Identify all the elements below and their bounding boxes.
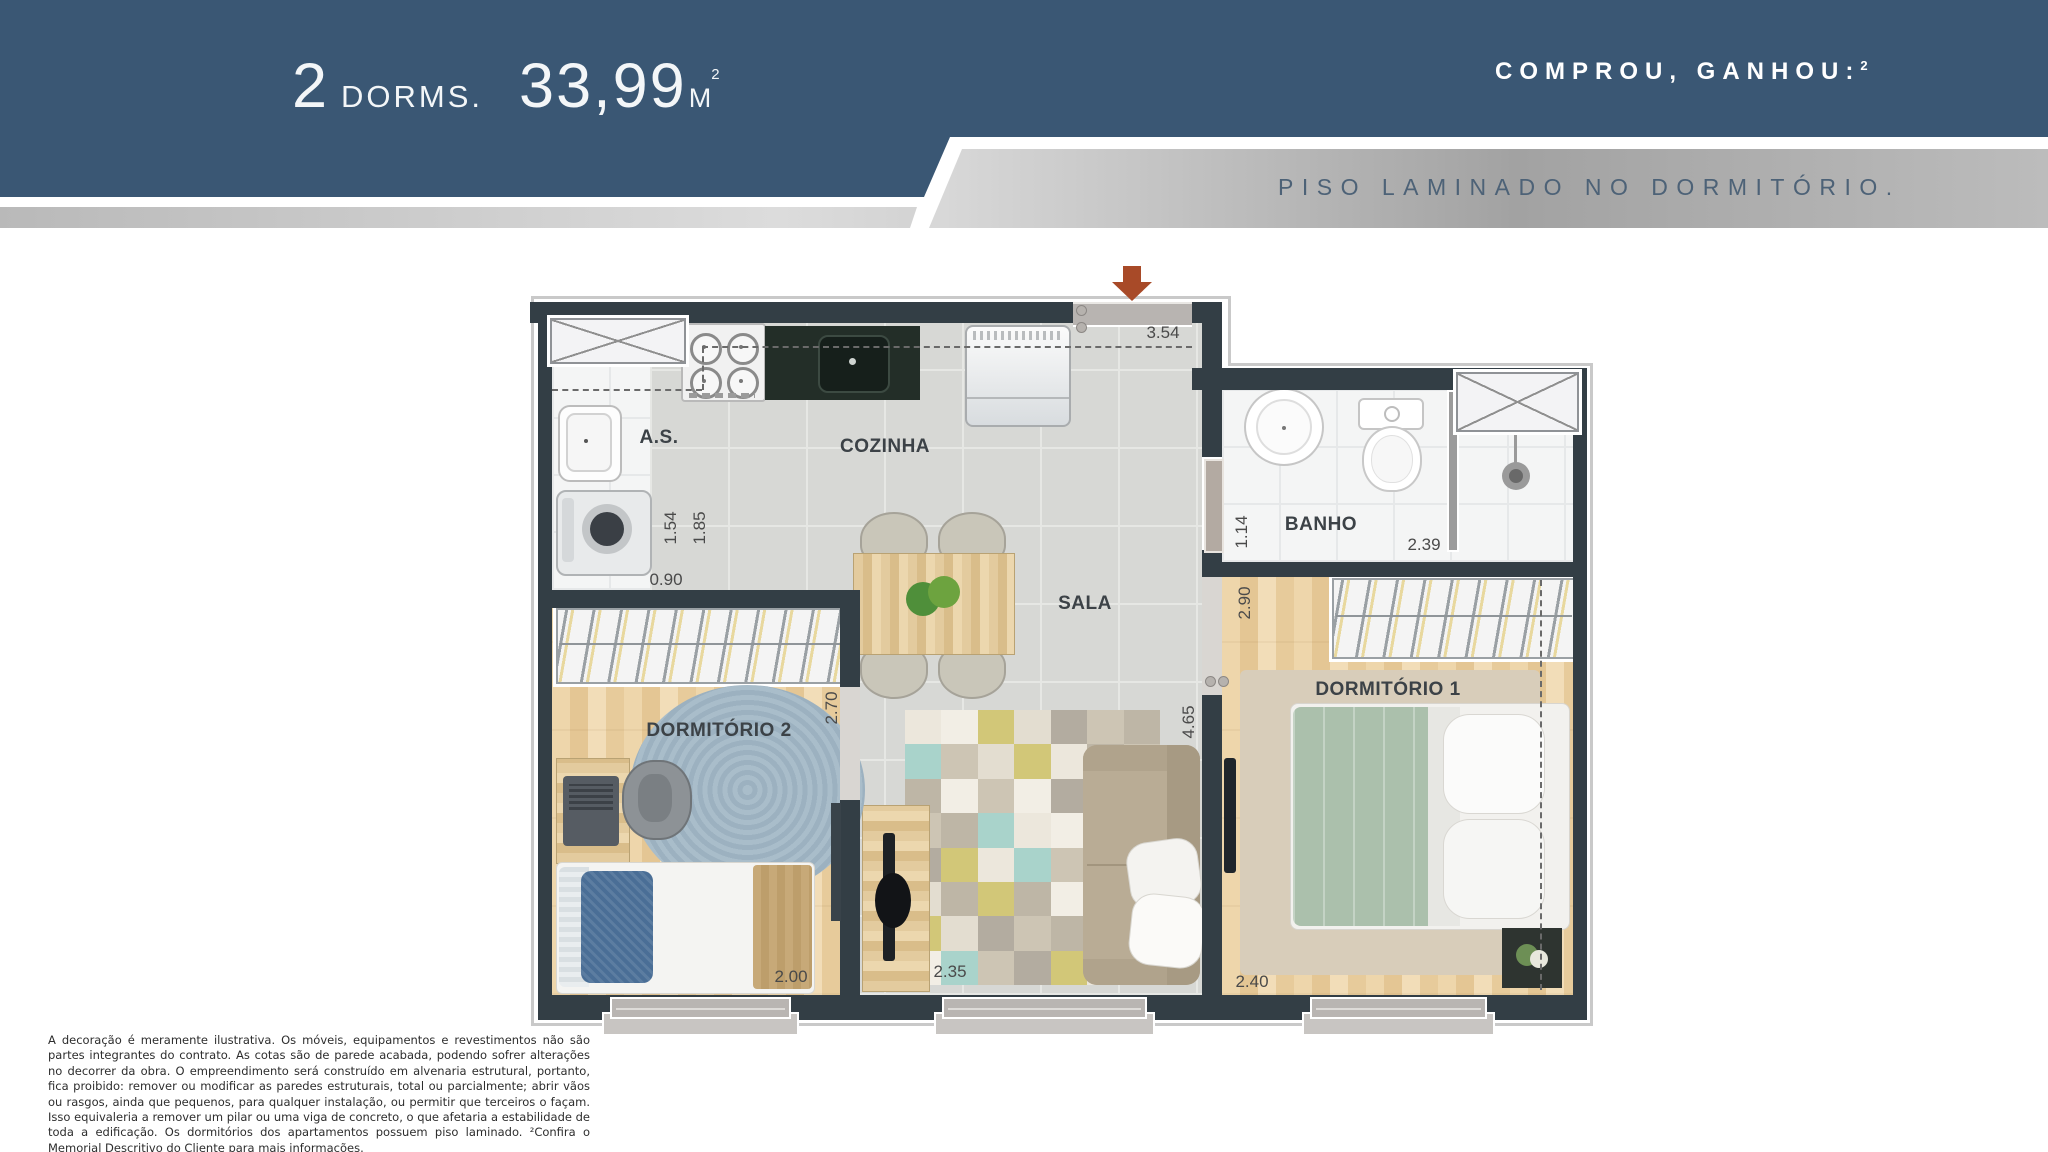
shower-head [1502, 462, 1530, 490]
dim-dorm1-width: 2.40 [1235, 972, 1268, 992]
laptop [563, 776, 619, 846]
bed-pillow [1443, 714, 1545, 814]
room-label-sala: SALA [1058, 593, 1112, 615]
units-count: 2 [292, 50, 329, 122]
door-hinge [1076, 305, 1087, 316]
flyer-page: 2 DORMS. 33,99 M2 COMPROU, GANHOU:2 PISO… [0, 0, 2048, 1152]
laundry-tank [558, 405, 622, 482]
cota-line [702, 347, 704, 390]
kitchen-counter [765, 326, 920, 400]
units-label: DORMS. [341, 79, 483, 115]
service-area-window-box [550, 318, 686, 364]
bathroom-window-box [1456, 372, 1579, 432]
bedroom1-window [1310, 997, 1487, 1019]
plant-side-table [1502, 928, 1562, 988]
plan-frame-line [1228, 296, 1231, 366]
toilet-bowl [1362, 426, 1422, 492]
dim-dorm1-depth: 2.90 [1235, 586, 1255, 619]
room-label-dormitorio1: DORMITÓRIO 1 [1315, 679, 1460, 701]
apartment-title: 2 DORMS. 33,99 M2 [292, 50, 720, 122]
wall [1202, 550, 1222, 577]
door-hinge [1218, 676, 1229, 687]
wall [840, 590, 860, 687]
wall [1573, 390, 1587, 1020]
legal-disclaimer: A decoração é meramente ilustrativa. Os … [48, 1033, 590, 1152]
dim-banho-length: 2.39 [1407, 535, 1440, 555]
washing-machine [556, 490, 652, 576]
bedroom2-wardrobe [556, 608, 844, 684]
tv-console [862, 805, 930, 992]
bedroom1-bed [1290, 703, 1570, 930]
plan-frame-line [1228, 363, 1593, 366]
dim-as-width: 0.90 [649, 570, 682, 590]
dim-banho-width: 1.14 [1232, 515, 1252, 548]
room-label-dormitorio2: DORMITÓRIO 2 [646, 720, 791, 742]
bed-duvet [1293, 707, 1428, 926]
wall [538, 302, 552, 1020]
sofa-pillow [1126, 891, 1207, 970]
plan-frame-line [531, 296, 534, 1026]
dim-dorm2-depth: 2.70 [822, 691, 842, 724]
bedroom2-door-leaf [831, 803, 841, 921]
wall [1202, 695, 1222, 1020]
room-label-cozinha: COZINHA [840, 436, 930, 458]
bed-pillow [1443, 819, 1545, 919]
dim-sala-width: 2.35 [933, 962, 966, 982]
bedroom2-window [610, 997, 791, 1019]
wall [1192, 302, 1222, 323]
denim-pillow [581, 871, 653, 983]
door-hinge [1076, 322, 1087, 333]
area-value: 33,99 [519, 50, 687, 122]
bathroom-sink [1244, 388, 1324, 466]
dim-sala-depth: 4.65 [1179, 705, 1199, 738]
bathroom-door [1204, 459, 1224, 553]
desk-chair [622, 760, 692, 840]
tv-bedroom1 [1224, 758, 1236, 873]
desk [556, 758, 630, 864]
plan-frame-line [1590, 363, 1593, 1026]
room-label-banho: BANHO [1285, 514, 1357, 536]
fridge [965, 325, 1071, 427]
living-window [942, 997, 1147, 1019]
promo-headline: COMPROU, GANHOU:2 [1495, 58, 1868, 86]
room-label-as: A.S. [640, 427, 679, 449]
ribbon-message: PISO LAMINADO NO DORMITÓRIO. [1278, 174, 1901, 201]
dim-dorm2-width: 2.00 [774, 967, 807, 987]
cota-line [702, 346, 1192, 348]
wall [1202, 562, 1587, 577]
wall [1202, 323, 1222, 457]
dining-table [853, 553, 1015, 655]
wall [840, 800, 860, 1020]
cota-line [552, 389, 702, 391]
wall [538, 590, 860, 608]
dim-entry-width: 3.54 [1146, 323, 1179, 343]
area-unit: M2 [689, 66, 720, 114]
projection-dashed-line [1540, 580, 1542, 990]
sofa [1083, 745, 1200, 985]
dim-as-depth: 1.54 [661, 511, 681, 544]
door-hinge [1205, 676, 1216, 687]
dim-kitchen-depth: 1.85 [690, 511, 710, 544]
bedroom2-door-opening [840, 687, 860, 800]
